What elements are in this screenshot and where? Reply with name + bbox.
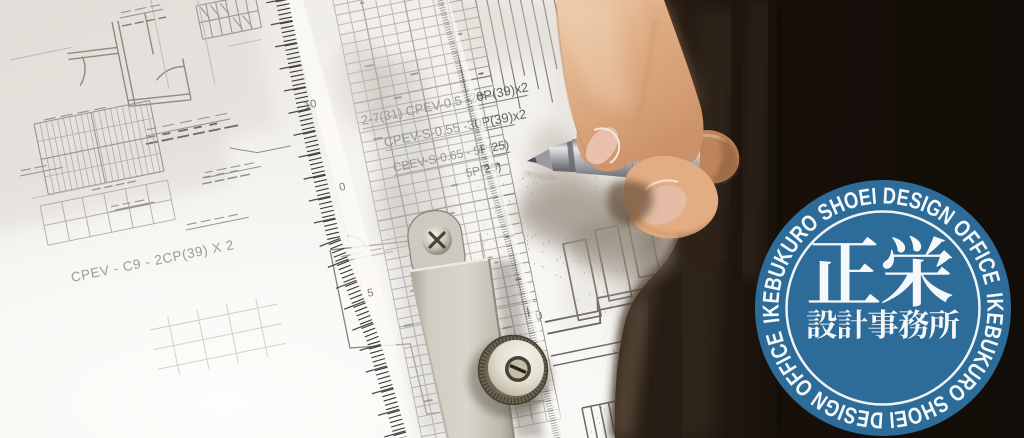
svg-text:10: 10 [303, 98, 317, 112]
